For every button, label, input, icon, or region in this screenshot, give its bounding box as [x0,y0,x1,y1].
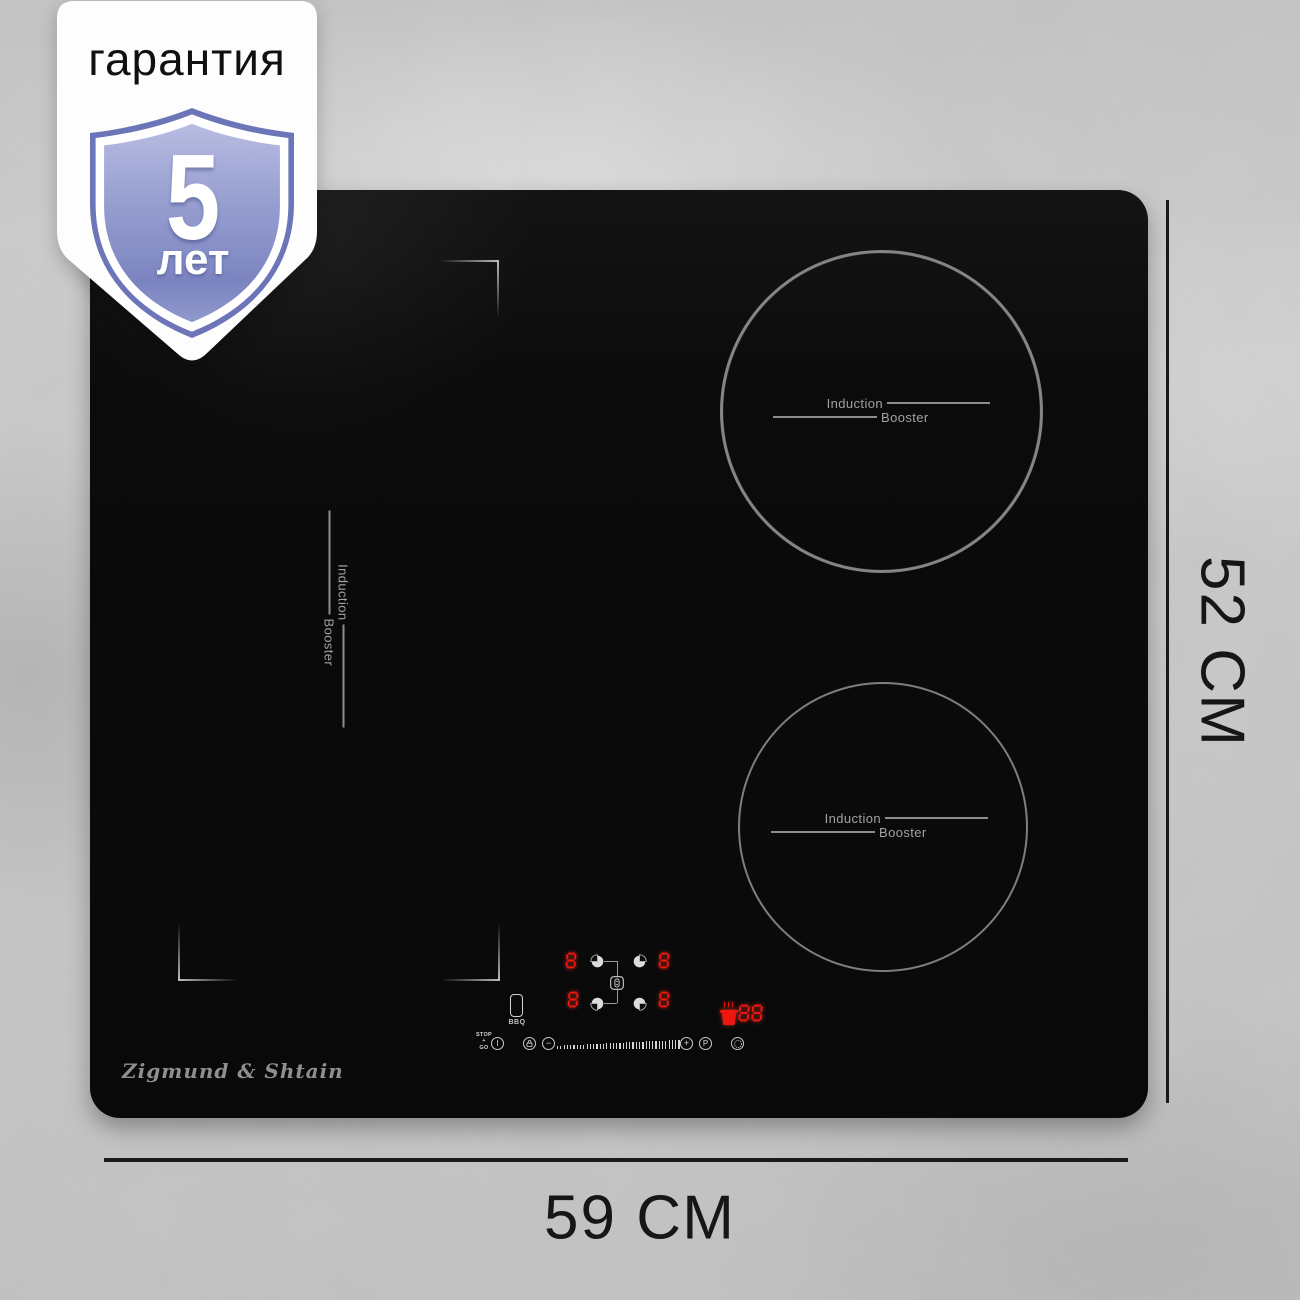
heat-display-bottom-right [658,991,670,1008]
burner-select-pie-icon [590,954,605,969]
power-icon: I [491,1037,504,1050]
burner-select-pie-icon [632,954,647,969]
bridge-connector-line [604,961,617,962]
induction-label: Induction [336,564,351,620]
heat-display-front-left [565,952,577,969]
timer-display-digit-2 [751,1004,763,1022]
timer-icon [731,1037,744,1050]
booster-label: Booster [881,410,929,425]
burner-select-pie-icon [632,996,647,1011]
zone-label-bridge-left: Induction Booster [323,511,351,728]
bridge-connector-line [617,961,618,977]
zone-label-top-right: Induction Booster [773,396,990,424]
burner-select-pie-icon [590,996,605,1011]
lock-icon [523,1037,536,1050]
plus-button-icon: + [680,1037,693,1050]
heat-display-rear-left [567,991,579,1008]
width-dimension-label: 59 СМ [544,1183,736,1254]
timer-display-digit-1 [738,1004,750,1022]
label-line [329,511,330,615]
label-line [343,625,344,728]
bbq-plate-icon [510,994,523,1017]
warranty-unit: лет [120,238,266,282]
bbq-label: BBQ [500,1019,534,1026]
bridge-zone-icon [610,976,624,990]
label-line [885,817,988,818]
bridge-connector-line [604,1003,617,1004]
induction-label: Induction [825,811,881,826]
width-dimension-line [104,1158,1128,1162]
induction-label: Induction [827,396,883,411]
warranty-title: гарантия [54,32,320,86]
label-line [773,416,877,417]
brand-logo: Zigmund & Shtain [122,1059,344,1083]
booster-label: Booster [322,619,337,667]
booster-p-icon: P [699,1037,712,1050]
height-dimension-line [1166,200,1169,1103]
power-slider-scale [557,1039,680,1049]
bridge-corner-bottom-left [178,923,237,981]
label-line [887,402,990,403]
height-dimension-label: 52 СМ [1187,556,1258,748]
label-line [771,831,875,832]
pot-steam-icon [720,1001,738,1026]
bridge-corner-bottom-right [441,923,500,981]
bridge-corner-top-right [441,260,499,317]
product-image: Induction Booster Induction Booster Indu… [0,0,1300,1300]
booster-label: Booster [879,825,927,840]
heat-display-top-right [658,952,670,969]
minus-button-icon: − [542,1037,555,1050]
bridge-connector-line [617,989,618,1003]
zone-label-bottom-right: Induction Booster [771,811,988,839]
